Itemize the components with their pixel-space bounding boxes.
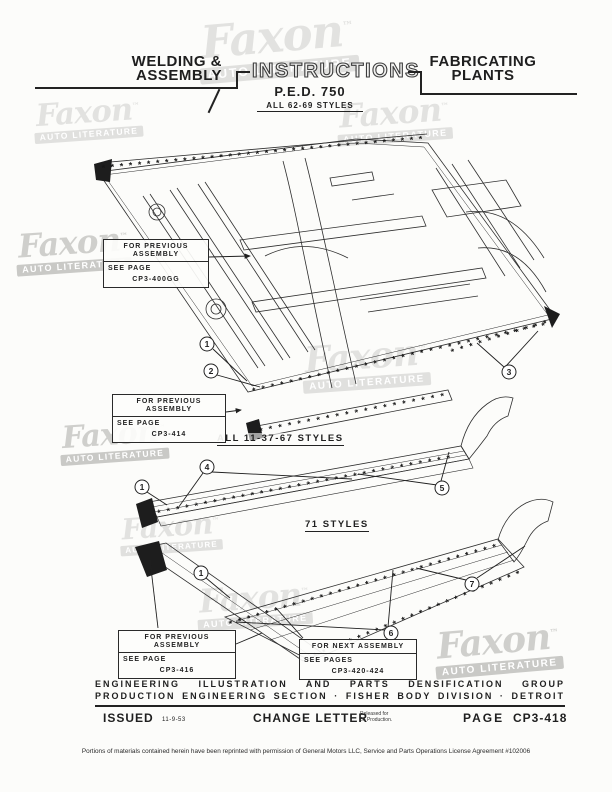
marker-1-main: 1 xyxy=(200,337,214,351)
svg-text:1: 1 xyxy=(205,339,210,349)
mid-section-style-label: ALL 11-37-67 STYLES xyxy=(217,433,344,446)
marker-1-bottom: 1 xyxy=(194,566,208,580)
svg-text:6: 6 xyxy=(389,628,394,638)
issued-label: ISSUED xyxy=(103,711,154,725)
svg-text:1: 1 xyxy=(199,568,204,578)
header-rule-left xyxy=(35,87,238,89)
ped-number: P.E.D. 750 xyxy=(255,84,365,99)
bracket-right-vertical xyxy=(420,71,422,95)
prev-assembly-box-main: FOR PREVIOUS ASSEMBLY SEE PAGE CP3-400GG xyxy=(103,239,209,288)
fabricating-plants-label: FABRICATING PLANTS xyxy=(423,55,543,83)
weld-row: * * * * * * * * * * * * * * * * * * * * … xyxy=(228,542,498,629)
svg-text:7: 7 xyxy=(470,579,475,589)
bracket-left-vertical xyxy=(236,72,238,89)
weld-row: * * * * * * * * * * * * * * * * * * * * … xyxy=(101,134,423,173)
footer-rule xyxy=(95,705,565,707)
weld-row: * * * * * * * * * * * xyxy=(450,318,549,357)
header-rule-right xyxy=(420,93,577,95)
scanned-instruction-sheet: Faxon™ AUTO LITERATURE Faxon™ AUTO LITER… xyxy=(0,0,612,792)
prev-assembly-box-bottom: FOR PREVIOUS ASSEMBLY SEE PAGE CP3-416 xyxy=(118,630,236,679)
weld-row: * * * * * * * * * * * * * * * * * * * * … xyxy=(157,453,452,518)
marker-1-mid: 1 xyxy=(135,480,149,494)
marker-6-bottom: 6 xyxy=(384,626,398,640)
marker-4-mid: 4 xyxy=(200,460,214,474)
issued-date: 11-9-53 xyxy=(162,717,186,723)
svg-text:2: 2 xyxy=(209,366,214,376)
next-page-ref: CP3-420-424 xyxy=(304,668,412,675)
prev-assembly-box-mid: FOR PREVIOUS ASSEMBLY SEE PAGE CP3-414 xyxy=(112,394,226,443)
svg-text:1: 1 xyxy=(140,482,145,492)
gm-license-note: Portions of materials contained herein h… xyxy=(0,748,612,755)
next-assembly-box: FOR NEXT ASSEMBLY SEE PAGES CP3-420-424 xyxy=(299,639,417,680)
marker-5-mid: 5 xyxy=(435,481,449,495)
svg-text:5: 5 xyxy=(440,483,445,493)
marker-7-bottom: 7 xyxy=(465,577,479,591)
instructions-title: INSTRUCTIONS xyxy=(252,60,420,83)
page-number: CP3-418 xyxy=(513,711,567,725)
division-line: PRODUCTION ENGINEERING SECTION · FISHER … xyxy=(95,691,565,701)
prev-page-ref: CP3-414 xyxy=(117,431,221,438)
welding-assembly-label: WELDING & ASSEMBLY xyxy=(110,55,222,83)
svg-text:4: 4 xyxy=(205,462,210,472)
prev-page-ref: CP3-416 xyxy=(123,667,231,674)
change-letter-note: Released for 56 Production. xyxy=(360,712,392,723)
engineering-group-line: ENGINEERING ILLUSTRATION AND PARTS DENSI… xyxy=(95,679,565,689)
marker-2-main: 2 xyxy=(204,364,218,378)
all-styles-label: ALL 62-69 STYLES xyxy=(257,101,363,112)
prev-page-ref: CP3-400GG xyxy=(108,276,204,283)
marker-3-main: 3 xyxy=(502,365,516,379)
change-letter-label: CHANGE LETTER xyxy=(253,711,368,725)
page-label: PAGE xyxy=(463,711,504,725)
bracket-left-dash xyxy=(236,71,250,73)
weld-row: * * * * * * * * * * * * * * * * * * * * xyxy=(259,391,446,436)
svg-text:3: 3 xyxy=(507,367,512,377)
bottom-section-style-label: 71 STYLES xyxy=(305,519,369,532)
